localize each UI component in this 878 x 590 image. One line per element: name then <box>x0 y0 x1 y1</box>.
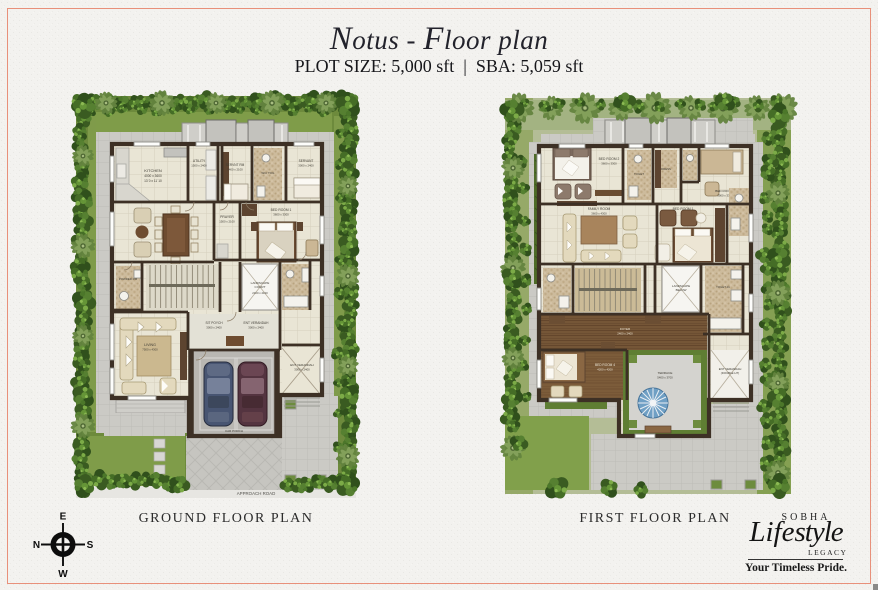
svg-text:TOILET-01: TOILET-01 <box>716 285 730 289</box>
svg-text:E: E <box>60 512 67 523</box>
svg-text:ENT VERANDAH: ENT VERANDAH <box>244 321 270 325</box>
svg-text:POWDER RM: POWDER RM <box>119 277 138 281</box>
svg-text:WC/ TOIL: WC/ TOIL <box>261 171 275 175</box>
svg-text:FOYER: FOYER <box>620 327 631 331</box>
svg-text:SERVANT: SERVANT <box>299 159 314 163</box>
svg-text:(DOUBLE HT): (DOUBLE HT) <box>721 371 740 375</box>
svg-text:3000 x 2400: 3000 x 2400 <box>294 368 310 372</box>
svg-text:N: N <box>33 540 40 551</box>
svg-text:2400 x 2400: 2400 x 2400 <box>617 332 633 336</box>
svg-text:2400 x 2100: 2400 x 2100 <box>227 168 243 172</box>
svg-text:3000 x 2400: 3000 x 2400 <box>206 326 222 330</box>
svg-text:BED ROOM 2: BED ROOM 2 <box>599 157 620 161</box>
svg-text:3600 x 3300: 3600 x 3300 <box>601 162 617 166</box>
svg-text:3600 x 4300: 3600 x 4300 <box>591 212 607 216</box>
svg-text:UTILITY: UTILITY <box>193 159 206 163</box>
svg-text:COURT: COURT <box>255 285 266 289</box>
svg-text:BED ROOM 1: BED ROOM 1 <box>673 207 694 211</box>
svg-text:S: S <box>87 540 94 551</box>
svg-text:SIT POYCH: SIT POYCH <box>205 321 223 325</box>
svg-text:3600 x 3300: 3600 x 3300 <box>273 213 289 217</box>
svg-text:BED ROOM 4: BED ROOM 4 <box>595 363 615 367</box>
svg-text:CAR PORCH: CAR PORCH <box>225 429 243 433</box>
svg-text:2100 x 2100: 2100 x 2100 <box>252 291 268 295</box>
svg-text:SERVNT RM: SERVNT RM <box>226 163 245 167</box>
svg-text:4000 x 3600: 4000 x 3600 <box>144 174 162 178</box>
svg-text:TERRACE: TERRACE <box>658 371 673 375</box>
svg-text:7500 x 4300: 7500 x 4300 <box>142 348 158 352</box>
svg-text:3000 x 2400: 3000 x 2400 <box>248 326 264 330</box>
svg-text:13´0 x 11´10: 13´0 x 11´10 <box>144 179 162 183</box>
svg-text:KITCHEN: KITCHEN <box>144 168 162 173</box>
svg-text:1500 x 2400: 1500 x 2400 <box>191 164 207 168</box>
svg-text:4200 x 4200: 4200 x 4200 <box>597 368 613 372</box>
svg-text:W: W <box>58 569 68 578</box>
svg-text:ENT VERANDAH: ENT VERANDAH <box>290 363 313 367</box>
svg-text:DRESS: DRESS <box>661 167 671 171</box>
svg-text:APPROACH ROAD: APPROACH ROAD <box>237 491 276 496</box>
svg-text:BED ROOM 1: BED ROOM 1 <box>271 208 292 212</box>
svg-text:1500 x 2100: 1500 x 2100 <box>219 220 235 224</box>
svg-text:LIVING: LIVING <box>144 343 156 347</box>
svg-text:FAMILY ROOM: FAMILY ROOM <box>588 207 611 211</box>
svg-text:PRAYER: PRAYER <box>220 215 234 219</box>
svg-text:TOILET: TOILET <box>634 172 644 176</box>
svg-text:BELOW: BELOW <box>676 288 687 292</box>
svg-text:5400 x 3700: 5400 x 3700 <box>657 376 673 380</box>
svg-text:3000 x 2400: 3000 x 2400 <box>298 164 314 168</box>
